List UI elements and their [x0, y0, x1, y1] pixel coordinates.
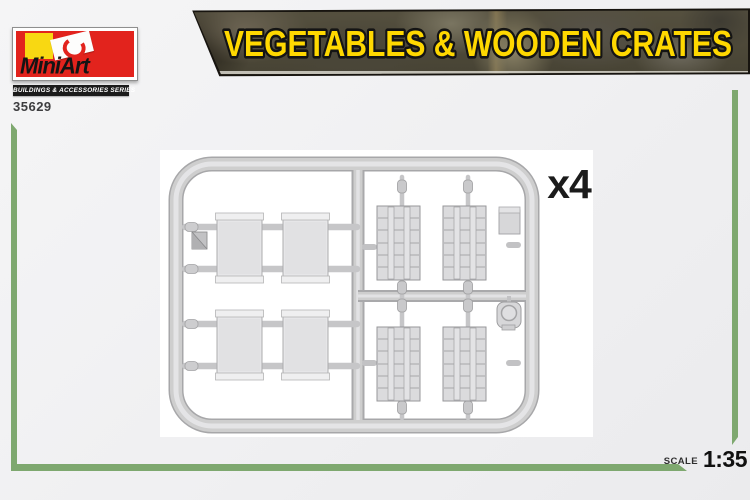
small-bracket-part — [192, 232, 207, 249]
sprue-art: x4 — [160, 150, 593, 437]
series-label: BUILDINGS & ACCESSORIES SERIES — [13, 85, 129, 96]
brand-name: MiniArt — [20, 54, 89, 77]
sprue-photo: x4 — [160, 150, 593, 437]
accent-line-bottom — [11, 464, 687, 471]
banner-title-art: VEGETABLES & WOODEN CRATES — [186, 7, 750, 77]
scale-indicator: SCALE1:35 — [600, 446, 747, 473]
logo-background: MiniArt — [16, 31, 134, 77]
sprue-gates-left — [185, 227, 357, 366]
product-code: 35629 — [13, 99, 52, 114]
scale-label: SCALE — [664, 456, 698, 467]
accent-line-right — [732, 90, 738, 445]
accent-line-left — [11, 123, 17, 471]
quantity-label: x4 — [547, 161, 592, 207]
miniart-logo: MiniArt — [12, 27, 138, 81]
page-title: VEGETABLES & WOODEN CRATES — [224, 23, 732, 64]
small-plank-part — [499, 207, 520, 234]
package-art: { "page": { "background": "#f0f0f1" }, "… — [0, 0, 750, 500]
scale-value: 1:35 — [703, 446, 747, 472]
title-banner: VEGETABLES & WOODEN CRATES — [186, 7, 750, 77]
crate-side-panels — [216, 213, 330, 380]
